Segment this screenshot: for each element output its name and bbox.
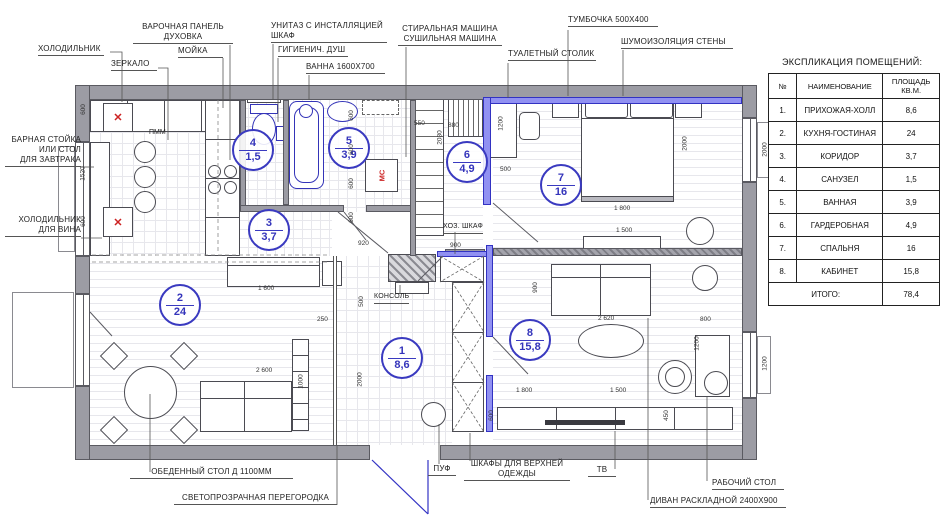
room-number: 6 [453,149,480,163]
zone-lines [92,100,330,262]
legend-cell-name: СПАЛЬНЯ [797,237,883,260]
legend-header-area: ПЛОЩАДЬ КВ.М. [883,74,940,99]
legend-cell-area: 8,6 [883,99,940,122]
legend-cell-num: 6. [769,214,797,237]
legend-row: 4.САНУЗЕЛ1,5 [769,168,940,191]
dimension-label: 500 [358,296,365,307]
legend-cell-area: 16 [883,237,940,260]
legend-total-label: ИТОГО: [769,283,883,306]
dimension-label: 1520 [80,166,87,180]
dimension-label: 1000 [298,374,305,388]
entrance-door [372,460,428,514]
legend-cell-name: КУХНЯ-ГОСТИНАЯ [797,122,883,145]
room-badge-6: 64,9 [446,141,488,183]
legend-cell-area: 24 [883,122,940,145]
callout-soundproof: ШУМОИЗОЛЯЦИЯ СТЕНЫ [621,37,733,49]
legend-cell-area: 4,9 [883,214,940,237]
legend-cell-name: ВАННАЯ [797,191,883,214]
legend-cell-name: КОРИДОР [797,145,883,168]
dimension-label: 2 620 [598,315,614,322]
legend-row: 3.КОРИДОР3,7 [769,145,940,168]
dimension-label: 600 [348,178,355,189]
callout-dressing-table: ТУАЛЕТНЫЙ СТОЛИК [508,49,596,61]
dimension-label: 920 [358,240,369,247]
callout-work-desk: РАБОЧИЙ СТОЛ [712,478,784,490]
dimension-label: 2000 [682,136,689,150]
legend-cell-num: 4. [769,168,797,191]
legend-cell-area: 3,9 [883,191,940,214]
dimension-label: 1 800 [516,387,532,394]
dimension-label: 800 [700,316,711,323]
leader-lines [81,30,707,505]
callout-hob-oven: ВАРОЧНАЯ ПАНЕЛЬДУХОВКА [133,22,233,44]
dimension-label: 600 [348,212,355,223]
dimension-label: 1200 [762,356,769,370]
room-area: 8,6 [394,359,409,371]
callout-foldout-sofa: ДИВАН РАСКЛАДНОЙ 2400Х900 [650,496,786,508]
room-badge-8: 815,8 [509,319,551,361]
callout-glass-partition: СВЕТОПРОЗРАЧНАЯ ПЕРЕГОРОДКА [174,493,337,505]
legend-row: 7.СПАЛЬНЯ16 [769,237,940,260]
legend-total-value: 78,4 [883,283,940,306]
legend-row: 6.ГАРДЕРОБНАЯ4,9 [769,214,940,237]
floor-plan-canvas: ✕ ✕ ПММ МС ХОЗ. ШКАФ КОНСО [0,0,940,524]
room-number: 7 [547,172,574,186]
dimension-label: 900 [532,282,539,293]
callout-fridge: ХОЛОДИЛЬНИК [38,44,104,56]
dimension-label: 2 600 [256,367,272,374]
room-number: 4 [239,137,266,151]
closet-x-marks [440,256,484,432]
room-badge-1: 18,6 [381,337,423,379]
dimension-label: 2000 [762,142,769,156]
legend-cell-area: 1,5 [883,168,940,191]
legend-table: № НАИМЕНОВАНИЕ ПЛОЩАДЬ КВ.М. 1.ПРИХОЖАЯ-… [768,73,940,306]
callout-dining-table: ОБЕДЕННЫЙ СТОЛ Д 1100ММ [130,467,293,479]
legend-cell-num: 5. [769,191,797,214]
callout-bath: ВАННА 1600Х700 [306,62,385,74]
legend-title: ЭКСПЛИКАЦИЯ ПОМЕЩЕНИЙ: [782,57,922,67]
callout-wine-fridge: ХОЛОДИЛЬНИКДЛЯ ВИНА [5,215,81,237]
room-area: 1,5 [245,151,260,163]
callout-toilet: УНИТАЗ С ИНСТАЛЛЯЦИЕЙШКАФ [271,21,387,43]
dimension-label: 600 [80,216,87,227]
callout-coat-closets: ШКАФЫ ДЛЯ ВЕРХНЕЙОДЕЖДЫ [464,459,570,481]
room-area: 3,7 [261,231,276,243]
dimension-label: 1 800 [614,205,630,212]
legend-row: 2.КУХНЯ-ГОСТИНАЯ24 [769,122,940,145]
room-area: 24 [174,306,186,318]
room-number: 3 [255,217,282,231]
dimension-label: 600 [80,104,87,115]
room-badge-2: 224 [159,284,201,326]
dimension-label: 550 [414,120,425,127]
callout-washer-dryer: СТИРАЛЬНАЯ МАШИНАСУШИЛЬНАЯ МАШИНА [398,24,502,46]
room-badge-4: 41,5 [232,129,274,171]
legend-total-row: ИТОГО:78,4 [769,283,940,306]
door-swings [90,203,538,374]
legend-cell-num: 8. [769,260,797,283]
legend-cell-name: КАБИНЕТ [797,260,883,283]
callout-sink: МОЙКА [178,46,223,58]
legend-cell-num: 3. [769,145,797,168]
legend-cell-num: 2. [769,122,797,145]
dimension-label: 1 500 [610,387,626,394]
dimension-label: 500 [500,166,511,173]
legend-row: 5.ВАННАЯ3,9 [769,191,940,214]
dimension-label: 600 [348,110,355,121]
legend-row: 1.ПРИХОЖАЯ-ХОЛЛ8,6 [769,99,940,122]
legend-cell-area: 15,8 [883,260,940,283]
legend-cell-area: 3,7 [883,145,940,168]
callout-hygienic-shower: ГИГИЕНИЧ. ДУШ [278,45,348,57]
dimension-label: 600 [488,410,495,421]
room-area: 4,9 [459,163,474,175]
callout-mirror: ЗЕРКАЛО [111,59,157,71]
room-number: 2 [166,292,193,306]
callout-nightstand: ТУМБОЧКА 500Х400 [568,15,658,27]
legend-header-num: № [769,74,797,99]
dimension-label: 1200 [498,116,505,130]
dimension-label: 1 600 [258,285,274,292]
legend-row: 8.КАБИНЕТ15,8 [769,260,940,283]
dimension-label: 1200 [694,336,701,350]
dimension-label: 450 [663,410,670,421]
room-badge-3: 33,7 [248,209,290,251]
callout-tv: ТВ [588,465,616,477]
dimension-label: 2000 [357,372,364,386]
dimension-label: 250 [317,316,328,323]
dimension-label: 600 [348,144,355,155]
dimension-label: 900 [450,242,461,249]
legend-cell-num: 7. [769,237,797,260]
room-area: 15,8 [519,341,540,353]
dimension-label: 2030 [437,130,444,144]
callout-bar-counter: БАРНАЯ СТОЙКАИЛИ СТОЛДЛЯ ЗАВТРАКА [5,135,81,167]
room-number: 1 [388,345,415,359]
legend-header-name: НАИМЕНОВАНИЕ [797,74,883,99]
legend-cell-num: 1. [769,99,797,122]
callout-pouf: ПУФ [428,464,456,476]
dimension-label: 880 [448,122,459,129]
legend-cell-name: САНУЗЕЛ [797,168,883,191]
legend-cell-name: ПРИХОЖАЯ-ХОЛЛ [797,99,883,122]
room-badge-7: 716 [540,164,582,206]
room-area: 16 [555,186,567,198]
legend-cell-name: ГАРДЕРОБНАЯ [797,214,883,237]
dimension-label: 1 500 [616,227,632,234]
room-number: 8 [516,327,543,341]
